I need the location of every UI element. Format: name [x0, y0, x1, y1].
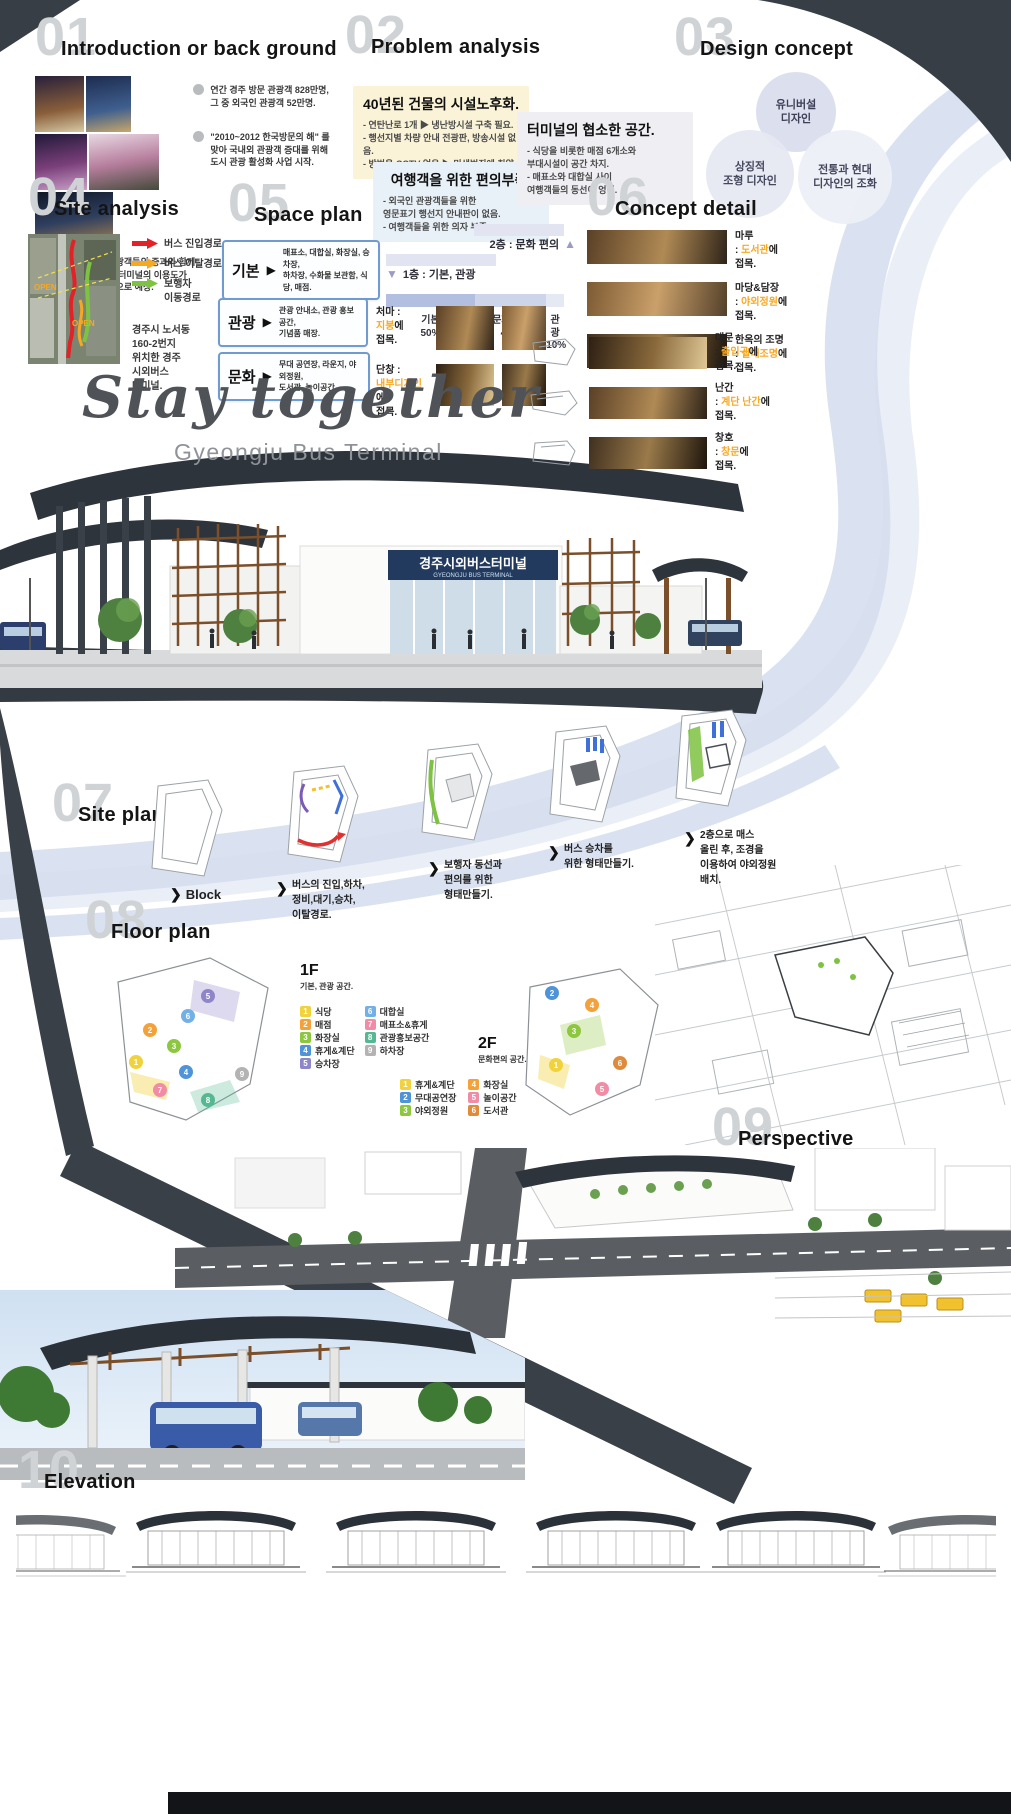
site-plan-step-mass: ❯2층으로 매스 올린 후, 조경을 이용하여 야외정원 배치.: [700, 828, 776, 888]
project-subtitle: Gyeongju Bus Terminal: [174, 439, 540, 466]
svg-text:3: 3: [572, 1027, 577, 1036]
legend-item: 4화장실: [468, 1078, 516, 1091]
legend-chip: 4: [468, 1079, 479, 1090]
section-title: Introduction or back ground: [61, 38, 350, 61]
concept-highlight: 야외정원: [741, 297, 778, 308]
legend-chip: 1: [400, 1079, 411, 1090]
photo-thumbnail: [35, 76, 84, 132]
massing-sketch-5: [666, 706, 754, 814]
legend-item: 1휴게&계단: [400, 1078, 456, 1091]
svg-text:6: 6: [618, 1059, 623, 1068]
legend-item: 3야외정원: [400, 1104, 456, 1117]
chevron-icon: ❯: [548, 842, 560, 863]
site-map-sketch: [655, 865, 1011, 1145]
play-arrow-icon: ▶: [263, 315, 272, 329]
hanok-photo: [587, 230, 727, 264]
svg-text:2: 2: [550, 989, 555, 998]
hanok-photo: [589, 387, 707, 419]
massing-sketch-3: [412, 740, 500, 848]
concept-highlight: 창문: [721, 447, 739, 458]
concept-highlight: 출입구: [721, 347, 749, 358]
detail-verb: 접목.: [376, 334, 428, 348]
massing-sketch-1: [142, 776, 230, 884]
legend-item: 8관광홍보공간: [365, 1031, 430, 1044]
floor-name: 2F: [478, 1035, 527, 1053]
hanok-photo: [589, 437, 707, 469]
legend-chip: 8: [365, 1032, 376, 1043]
problem-item: - 행선지별 차량 안내 전광판, 방송시설 없음.: [363, 132, 519, 158]
legend-chip: 4: [300, 1045, 311, 1056]
chevron-icon: ❯: [170, 886, 182, 902]
concept-verb: 접목.: [715, 360, 781, 374]
route-arrow-icon: [132, 238, 158, 249]
legend-item: 5승차장: [300, 1057, 355, 1070]
problem-item: - 연탄난로 1개 ▶ 냉난방시설 구축 필요.: [363, 119, 519, 132]
detail-highlight: 지붕: [376, 321, 394, 332]
section-header: 01 Introduction or back ground: [35, 22, 350, 66]
legend-item: 7매표소&휴게: [365, 1018, 430, 1031]
down-arrow-icon: ▼: [386, 267, 398, 281]
site-plan-step-block: ❯Block: [170, 884, 221, 905]
project-title-block: Stay together Gyeongju Bus Terminal: [82, 364, 540, 466]
section-header: 10 Elevation: [18, 1455, 218, 1499]
legend-chip: 7: [365, 1019, 376, 1030]
chevron-icon: ❯: [428, 858, 440, 879]
legend-chip: 1: [300, 1006, 311, 1017]
section-title: Site analysis: [54, 198, 243, 221]
concept-verb: 접목.: [735, 258, 805, 272]
level-strip: [386, 254, 496, 266]
concept-item-maru: 마루 : 도서관에 접목.: [587, 230, 805, 272]
concept-verb: 접목.: [715, 460, 781, 474]
concept-item-railing: 난간 : 계단 난간에 접목.: [525, 382, 781, 424]
floor-2f-header: 2F 문화편의 공간.: [478, 1035, 527, 1065]
concept-name: 마루: [735, 230, 805, 244]
floor-2f-legend: 1휴게&계단 2무대공연장 3야외정원 4화장실 5놀이공간 6도서관: [400, 1078, 580, 1117]
map-open-label: OPEN: [72, 319, 95, 328]
section-header: 04 Site analysis: [28, 182, 243, 226]
legend-pedestrian: 보행자 이동경로: [132, 278, 222, 306]
svg-text:6: 6: [186, 1012, 191, 1021]
space-row-basic: 기본 ▶ 매표소, 대합실, 화장실, 승차장, 하차장, 수화물 보관함, 식…: [222, 240, 380, 300]
section-title: Problem analysis: [371, 36, 695, 59]
legend-item: 1식당: [300, 1005, 355, 1018]
hanok-photo: [587, 282, 727, 316]
footer-bar: [168, 1792, 1011, 1814]
legend-label: 버스 이탈경로: [164, 258, 222, 272]
legend-item: 9하차장: [365, 1044, 430, 1057]
svg-text:1: 1: [134, 1058, 139, 1067]
section-floor-plan: 08 Floor plan: [85, 905, 285, 949]
site-aerial-map: OPEN OPEN: [28, 234, 120, 364]
section-concept-detail: 06 Concept detail 마루 : 도서관에 접목. 마당&담장 : …: [515, 182, 1011, 442]
svg-text:7: 7: [158, 1086, 163, 1095]
concept-item-gate: 대문 : 출입구에 접목.: [525, 332, 781, 374]
elevation-drawings: [16, 1495, 996, 1605]
route-arrow-icon: [132, 278, 158, 289]
site-plan-step-bus-route: ❯버스의 진입,하차, 정비,대기,승차, 이탈경로.: [292, 878, 365, 923]
concept-verb: 접목.: [735, 310, 805, 324]
site-plan-step-boarding: ❯버스 승차를 위한 형태만들기.: [564, 842, 634, 872]
section-title: Concept detail: [615, 198, 1011, 221]
legend-chip: 2: [300, 1019, 311, 1030]
section-header: 02 Problem analysis: [345, 20, 695, 64]
legend-chip: 3: [400, 1105, 411, 1116]
photo-thumbnail: [86, 76, 131, 132]
concept-item-window: 창호 : 창문에 접목.: [525, 432, 781, 474]
svg-text:4: 4: [184, 1068, 189, 1077]
section-elevation: 10 Elevation: [18, 1455, 218, 1499]
intro-bullet-text: 연간 경주 방문 관광객 828만명, 그 중 외국인 관광객 52만명.: [210, 84, 329, 109]
legend-item: 2매점: [300, 1018, 355, 1031]
legend-item: 6도서관: [468, 1104, 516, 1117]
bullet-dot-icon: [193, 131, 204, 142]
svg-text:5: 5: [206, 992, 211, 1001]
space-row-label: 기본: [232, 260, 260, 281]
intro-bullet: "2010~2012 한국방문의 해" 를 맞아 국내외 관광객 증대를 위해 …: [193, 131, 350, 169]
legend-bus-entry: 버스 진입경로: [132, 238, 222, 252]
massing-sketch-2: [278, 762, 366, 870]
svg-text:3: 3: [172, 1042, 177, 1051]
site-plan-step-pedestrian: ❯보행자 동선과 편의를 위한 형태만들기.: [444, 858, 502, 903]
presentation-board: 01 Introduction or back ground 연간 경주 방문 …: [0, 0, 1011, 1814]
map-open-label: OPEN: [34, 283, 57, 292]
problem-card-title: 40년된 건물의 시설노후화.: [363, 94, 519, 114]
space-row-desc: 매표소, 대합실, 화장실, 승차장, 하차장, 수화물 보관함, 식당, 매점…: [283, 247, 370, 293]
concept-highlight: 계단 난간: [721, 397, 761, 408]
legend-item: 3화장실: [300, 1031, 355, 1044]
section-site-analysis: 04 Site analysis OPEN OPEN: [28, 182, 243, 394]
svg-text:4: 4: [590, 1001, 595, 1010]
chevron-icon: ❯: [684, 828, 696, 849]
floor-sub: 문화편의 공간.: [478, 1054, 527, 1065]
legend-chip: 2: [400, 1092, 411, 1103]
legend-item: 4휴게&계단: [300, 1044, 355, 1057]
legend-item: 6대합실: [365, 1005, 430, 1018]
route-arrow-icon: [132, 258, 158, 269]
concept-name: 마당&담장: [735, 282, 805, 296]
hanok-photo: [589, 337, 707, 369]
terminal-sign-english: GYEONGJU BUS TERMINAL: [433, 573, 513, 579]
legend-chip: 5: [300, 1058, 311, 1069]
space-row-tourism: 관광 ▶ 관광 안내소, 관광 홍보 공간, 기념품 매장.: [218, 298, 368, 347]
legend-chip: 5: [468, 1092, 479, 1103]
space-row-desc: 관광 안내소, 관광 홍보 공간, 기념품 매장.: [279, 305, 358, 340]
section-title: Design concept: [700, 38, 960, 61]
concept-verb: 접목.: [715, 410, 781, 424]
legend-chip: 6: [468, 1105, 479, 1116]
svg-text:8: 8: [206, 1096, 211, 1105]
hanok-photo: [436, 306, 494, 350]
floor-sub: 기본, 관광 공간.: [300, 981, 353, 992]
legend-item: 5놀이공간: [468, 1091, 516, 1104]
legend-chip: 6: [365, 1006, 376, 1017]
legend-chip: 9: [365, 1045, 376, 1056]
svg-text:5: 5: [600, 1085, 605, 1094]
play-arrow-icon: ▶: [267, 263, 276, 277]
project-title: Stay together: [82, 364, 540, 431]
section-title: Floor plan: [111, 921, 285, 944]
legend-chip: 3: [300, 1032, 311, 1043]
concept-items-right: 대문 : 출입구에 접목. 난간 : 계단 난간에 접목. 창호: [525, 332, 781, 474]
legend-bus-exit: 버스 이탈경로: [132, 258, 222, 272]
space-row-label: 관광: [228, 312, 256, 333]
terminal-sign-korean: 경주시외버스터미널: [419, 556, 527, 571]
svg-text:1: 1: [554, 1061, 559, 1070]
legend-label: 버스 진입경로: [164, 238, 222, 252]
chevron-icon: ❯: [276, 878, 288, 899]
detail-name: 처마 :: [376, 306, 428, 320]
section-header: 08 Floor plan: [85, 905, 285, 949]
intro-bullet: 연간 경주 방문 관광객 828만명, 그 중 외국인 관광객 52만명.: [193, 84, 350, 109]
floor-1f-header: 1F 기본, 관광 공간.: [300, 962, 353, 992]
section-header: 03 Design concept: [660, 22, 960, 66]
floor-plan-1f: 5 6 2 3 1 4 7 8 9: [90, 952, 295, 1132]
floor-name: 1F: [300, 962, 353, 980]
intro-bullet-text: "2010~2012 한국방문의 해" 를 맞아 국내외 관광객 증대를 위해 …: [210, 131, 329, 169]
concept-highlight: 도서관: [741, 245, 769, 256]
section-title: Elevation: [44, 1471, 218, 1494]
concept-name: 대문: [715, 332, 781, 346]
concept-name: 난간: [715, 382, 781, 396]
concept-item-madang: 마당&담장 : 야외정원에 접목.: [587, 282, 805, 324]
svg-text:9: 9: [240, 1070, 245, 1079]
massing-sketch-4: [540, 722, 628, 830]
legend-item: 2무대공연장: [400, 1091, 456, 1104]
concept-name: 창호: [715, 432, 781, 446]
level-label-1f: 1층 : 기본, 관광: [403, 266, 476, 282]
floor-1f-legend: 1식당 2매점 3화장실 4휴게&계단 5승차장 6대합실 7매표소&휴게 8관…: [300, 1005, 480, 1070]
legend-label: 보행자 이동경로: [164, 278, 201, 306]
section-header: 06 Concept detail: [515, 182, 1011, 226]
svg-text:2: 2: [148, 1026, 153, 1035]
bullet-dot-icon: [193, 84, 204, 95]
